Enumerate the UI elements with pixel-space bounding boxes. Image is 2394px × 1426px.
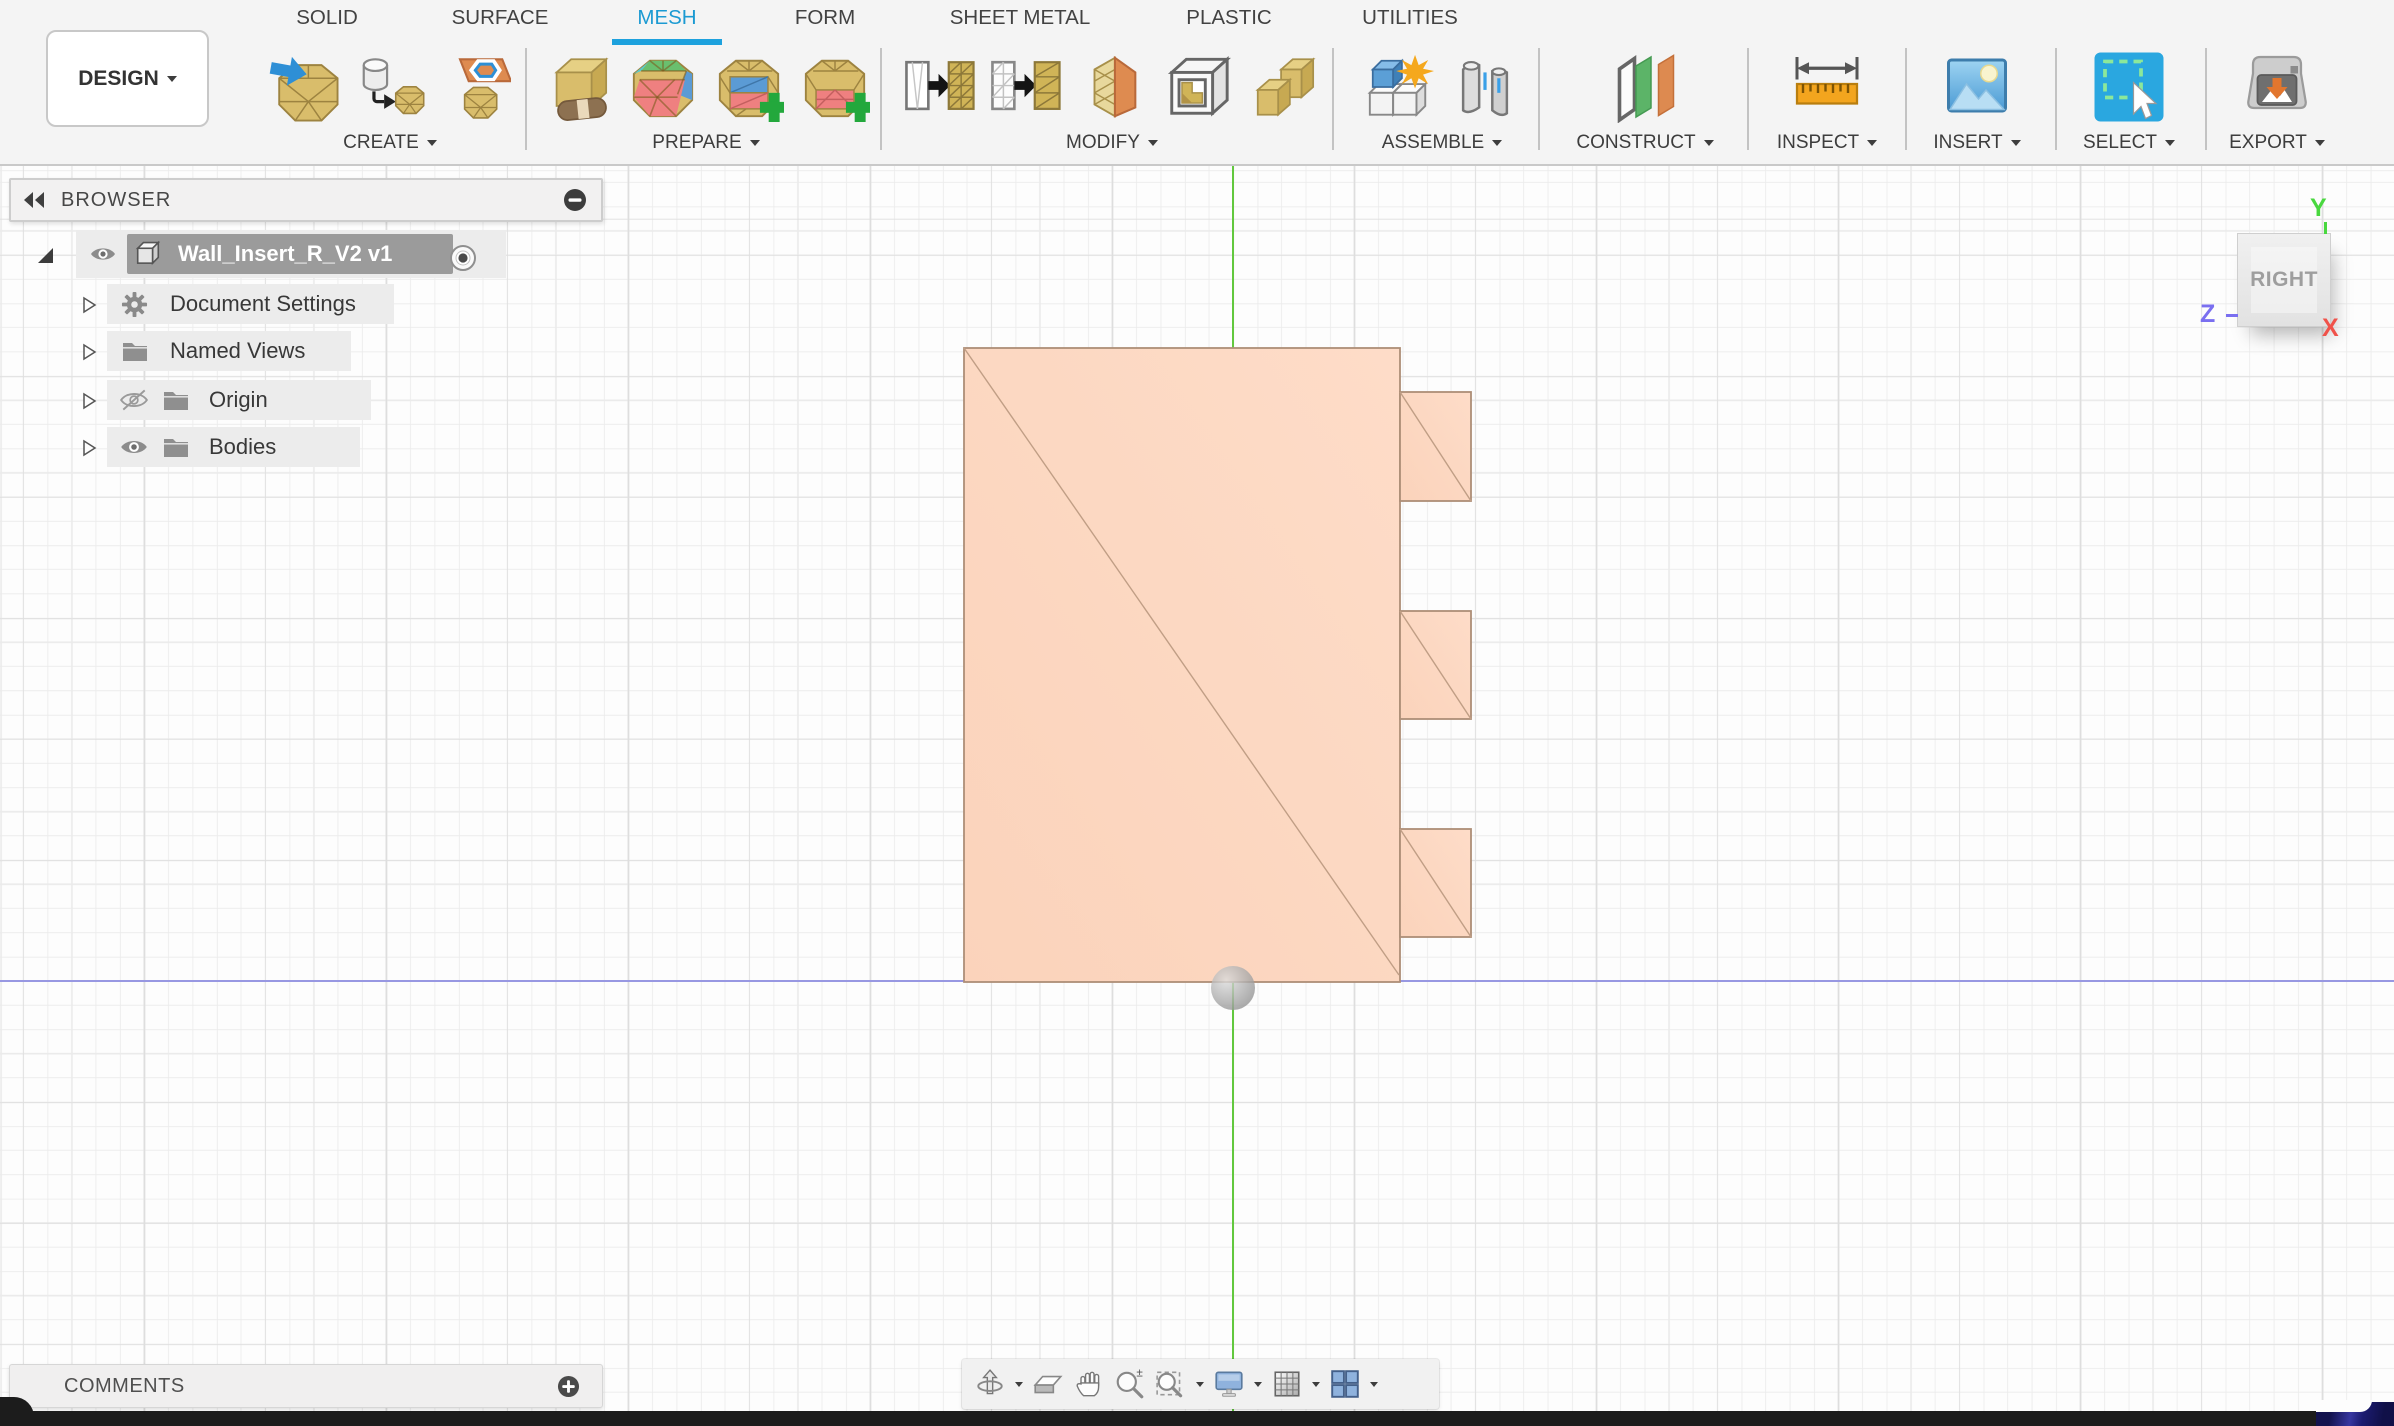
joint-icon [1450,52,1520,122]
origin-marker[interactable] [1211,966,1255,1010]
chevron-down-icon [1148,140,1158,146]
chevron-down-icon [2165,140,2175,146]
viewports-button[interactable] [1329,1368,1378,1400]
zoom-icon: ± [1114,1368,1146,1400]
add-comment-icon[interactable] [557,1375,580,1398]
activate-radio-icon[interactable] [449,244,477,272]
zoom-button[interactable]: ± [1114,1368,1146,1400]
insert-image-button[interactable] [1940,48,2014,126]
merge-bodies-icon [1249,52,1319,122]
group-create: CREATE [262,44,518,160]
design-menu-button[interactable]: DESIGN [46,30,209,127]
tab-solid[interactable]: SOLID [296,6,358,30]
tessellate-icon [441,52,511,122]
tab-surface[interactable]: SURFACE [452,6,549,30]
reduce-button[interactable] [798,48,872,126]
browser-root-item[interactable]: Wall_Insert_R_V2 v1 [127,234,453,274]
erase-and-fill-button[interactable] [1075,48,1149,126]
chevron-down-icon [1370,1382,1378,1387]
axis-y-label: Y [2310,194,2327,223]
browser-row-origin[interactable]: Origin [107,380,371,420]
select-button[interactable] [2092,48,2166,126]
create-mesh-button[interactable] [353,48,427,126]
grid-display-icon [1271,1368,1303,1400]
insert-mesh-icon [269,52,339,122]
toolbar-separator [880,48,882,150]
select-group-label[interactable]: SELECT [2083,132,2175,154]
generate-face-groups-icon [628,52,698,122]
grid-display-button[interactable] [1271,1368,1320,1400]
row-label: Named Views [170,338,305,364]
top-toolbar: SOLID SURFACE MESH FORM SHEET METAL PLAS… [0,0,2394,166]
axis-z-stub [2226,314,2238,317]
group-prepare: PREPARE [538,44,874,160]
toolbar-separator [1747,48,1749,150]
chevron-down-icon [1254,1382,1262,1387]
tab-utilities[interactable]: UTILITIES [1362,6,1458,30]
inspect-group-label[interactable]: INSPECT [1777,132,1877,154]
joint-button[interactable] [1448,48,1522,126]
orbit-button[interactable] [974,1368,1023,1400]
assemble-group-label[interactable]: ASSEMBLE [1382,132,1502,154]
orbit-icon [974,1368,1006,1400]
axis-y-stub [2324,222,2327,234]
generate-face-groups-button[interactable] [626,48,700,126]
plane-cut-fill-button[interactable] [989,48,1063,126]
new-component-button[interactable] [1362,48,1436,126]
axis-z-label: Z [2200,300,2215,329]
collapsed-arrow-icon[interactable] [78,295,98,315]
collapsed-arrow-icon[interactable] [78,391,98,411]
visibility-eye-icon[interactable] [119,435,149,459]
viewcube-face-label: RIGHT [2250,268,2318,292]
create-group-label[interactable]: CREATE [343,132,437,154]
svg-text:±: ± [1136,1368,1143,1380]
group-modify: MODIFY [898,44,1326,160]
chevron-down-icon [1867,140,1877,146]
comments-panel[interactable]: COMMENTS [9,1364,603,1408]
axis-x-label: X [2322,314,2339,343]
collapsed-arrow-icon[interactable] [78,438,98,458]
group-select: SELECT [2064,44,2194,160]
new-component-icon [1364,52,1434,122]
browser-row-named-views[interactable]: Named Views [107,331,351,371]
folder-icon [121,339,149,363]
repair-icon [542,52,612,122]
remesh-icon [714,52,784,122]
chevron-down-icon [1492,140,1502,146]
remesh-button[interactable] [712,48,786,126]
folder-icon [162,435,190,459]
repair-button[interactable] [540,48,614,126]
erase-and-fill-icon [1077,52,1147,122]
tab-mesh[interactable]: MESH [637,6,696,30]
bottom-edge-bar [0,1411,2316,1426]
plane-cut-button[interactable] [903,48,977,126]
group-export: EXPORT [2212,44,2342,160]
merge-bodies-button[interactable] [1247,48,1321,126]
pan-button[interactable] [1073,1368,1105,1400]
zoom-window-icon [1155,1368,1187,1400]
export-button[interactable] [2240,48,2314,126]
reduce-icon [800,52,870,122]
toolbar-separator [1905,48,1907,150]
chevron-down-icon [2011,140,2021,146]
shell-icon [1163,52,1233,122]
zoom-window-button[interactable] [1155,1368,1204,1400]
construct-plane-button[interactable] [1608,48,1682,126]
shell-button[interactable] [1161,48,1235,126]
construct-group-label[interactable]: CONSTRUCT [1576,132,1713,154]
folder-icon [162,388,190,412]
prepare-group-label[interactable]: PREPARE [652,132,759,154]
chevron-down-icon [1704,140,1714,146]
measure-icon [1791,51,1863,123]
chevron-down-icon [1015,1382,1023,1387]
minimize-icon[interactable] [563,188,587,212]
tab-form[interactable]: FORM [795,6,855,30]
root-item-label: Wall_Insert_R_V2 v1 [178,241,392,267]
comments-title: COMMENTS [64,1375,557,1398]
gear-icon [121,291,148,318]
insert-group-label[interactable]: INSERT [1933,132,2020,154]
fusion-window: SOLID SURFACE MESH FORM SHEET METAL PLAS… [0,0,2394,1426]
tab-plastic[interactable]: PLASTIC [1186,6,1271,30]
chevron-down-icon [2315,140,2325,146]
tessellate-button[interactable] [439,48,513,126]
browser-header: BROWSER [9,178,603,222]
component-cube-icon [132,238,164,270]
toolbar-separator [2055,48,2057,150]
window-rounded-corner [2316,1400,2372,1412]
plane-cut-fill-icon [991,52,1061,122]
navigation-toolbar: ± [962,1359,1439,1409]
row-label: Document Settings [170,291,356,317]
viewports-icon [1329,1368,1361,1400]
viewcube[interactable]: RIGHT [2237,233,2331,327]
measure-button[interactable] [1790,48,1864,126]
look-at-button[interactable] [1032,1368,1064,1400]
export-group-label[interactable]: EXPORT [2229,132,2325,154]
browser-title: BROWSER [61,189,563,212]
insert-image-icon [1941,51,2013,123]
visibility-eye-icon[interactable] [88,243,118,265]
tab-sheet-metal[interactable]: SHEET METAL [950,6,1091,30]
construct-plane-icon [1609,51,1681,123]
visibility-off-icon[interactable] [119,388,149,412]
modify-group-label[interactable]: MODIFY [1066,132,1158,154]
expand-arrow-icon[interactable] [34,244,56,266]
browser-row-document-settings[interactable]: Document Settings [107,284,394,324]
toolbar-separator [1538,48,1540,150]
toolbar-separator [525,48,527,150]
toolbar-separator [2205,48,2207,150]
create-mesh-icon [355,52,425,122]
look-at-icon [1032,1368,1064,1400]
group-inspect: INSPECT [1762,44,1892,160]
chevron-down-icon [1312,1382,1320,1387]
chevron-down-icon [1196,1382,1204,1387]
chevron-down-icon [750,140,760,146]
group-assemble: ASSEMBLE [1352,44,1532,160]
row-label: Bodies [209,434,276,460]
chevron-down-icon [427,140,437,146]
chevron-down-icon [167,76,177,82]
row-label: Origin [209,387,268,413]
plane-cut-icon [905,52,975,122]
insert-mesh-button[interactable] [267,48,341,126]
display-settings-icon [1213,1368,1245,1400]
export-3d-print-icon [2241,51,2313,123]
group-insert: INSERT [1912,44,2042,160]
select-cursor-icon [2093,51,2165,123]
browser-row-bodies[interactable]: Bodies [107,427,360,467]
pan-hand-icon [1073,1368,1105,1400]
group-construct: CONSTRUCT [1560,44,1730,160]
collapse-panel-icon[interactable] [21,189,47,211]
toolbar-separator [1332,48,1334,150]
mesh-body[interactable] [963,347,1474,983]
display-settings-button[interactable] [1213,1368,1262,1400]
collapsed-arrow-icon[interactable] [78,342,98,362]
